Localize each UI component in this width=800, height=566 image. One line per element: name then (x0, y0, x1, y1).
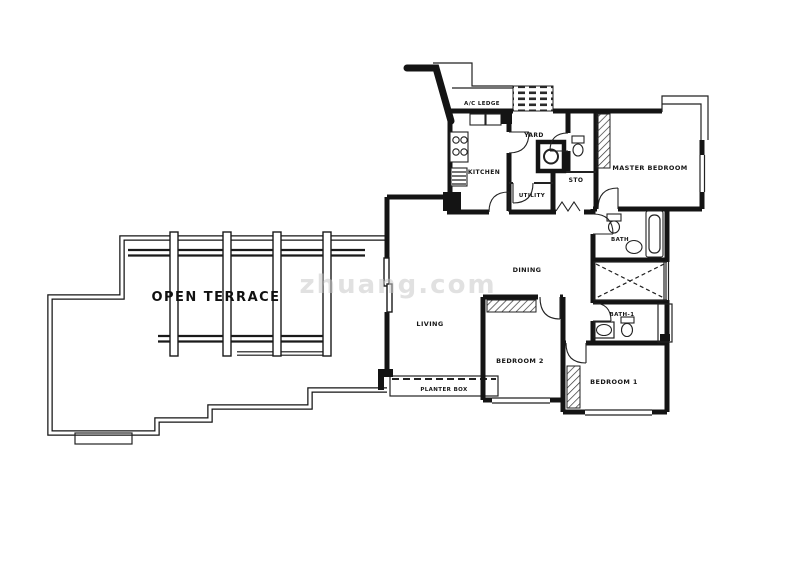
bath1-door (593, 303, 611, 321)
label-yard: YARD (523, 132, 544, 139)
label-bath-1: BATH-1 (610, 312, 635, 318)
washer (538, 142, 564, 171)
bedroom2-door (540, 297, 560, 319)
yard-fixtures (538, 142, 564, 171)
sto-bifold-door (556, 202, 580, 211)
shaft-void (594, 262, 666, 300)
doors (384, 132, 618, 363)
label-kitchen: KITCHEN (468, 169, 500, 176)
label-bedroom-2: BEDROOM 2 (496, 357, 544, 365)
bath1-fixtures (594, 304, 672, 342)
label-bedroom-1: BEDROOM 1 (590, 378, 638, 386)
bath-fixtures (607, 211, 663, 257)
label-dining: DINING (513, 266, 542, 274)
label-master-bedroom: MASTER BEDROOM (612, 164, 687, 172)
master-bedroom-door (598, 188, 618, 209)
label-living: LIVING (416, 320, 443, 328)
toilet-bowl (622, 324, 633, 337)
label-sto: STO (569, 177, 584, 184)
label-ac-ledge: A/C LEDGE (464, 101, 500, 107)
sink (597, 325, 612, 336)
label-utility: UTILITY (519, 193, 546, 199)
label-open-terrace: OPEN TERRACE (151, 290, 280, 305)
label-planter-box: PLANTER BOX (420, 387, 468, 393)
bedroom1-door (566, 343, 586, 363)
floor-plan-page: zhuang.com OPEN TERRACE A/C LEDGE KITCHE… (0, 0, 800, 566)
floor-plan-drawing: zhuang.com OPEN TERRACE A/C LEDGE KITCHE… (0, 0, 800, 566)
open-terrace-structure (50, 232, 387, 444)
label-bath: BATH (611, 237, 629, 243)
kitchen-door (489, 192, 509, 212)
watermark: zhuang.com (299, 270, 496, 300)
wc-fixtures (572, 136, 584, 156)
counter (451, 168, 467, 186)
